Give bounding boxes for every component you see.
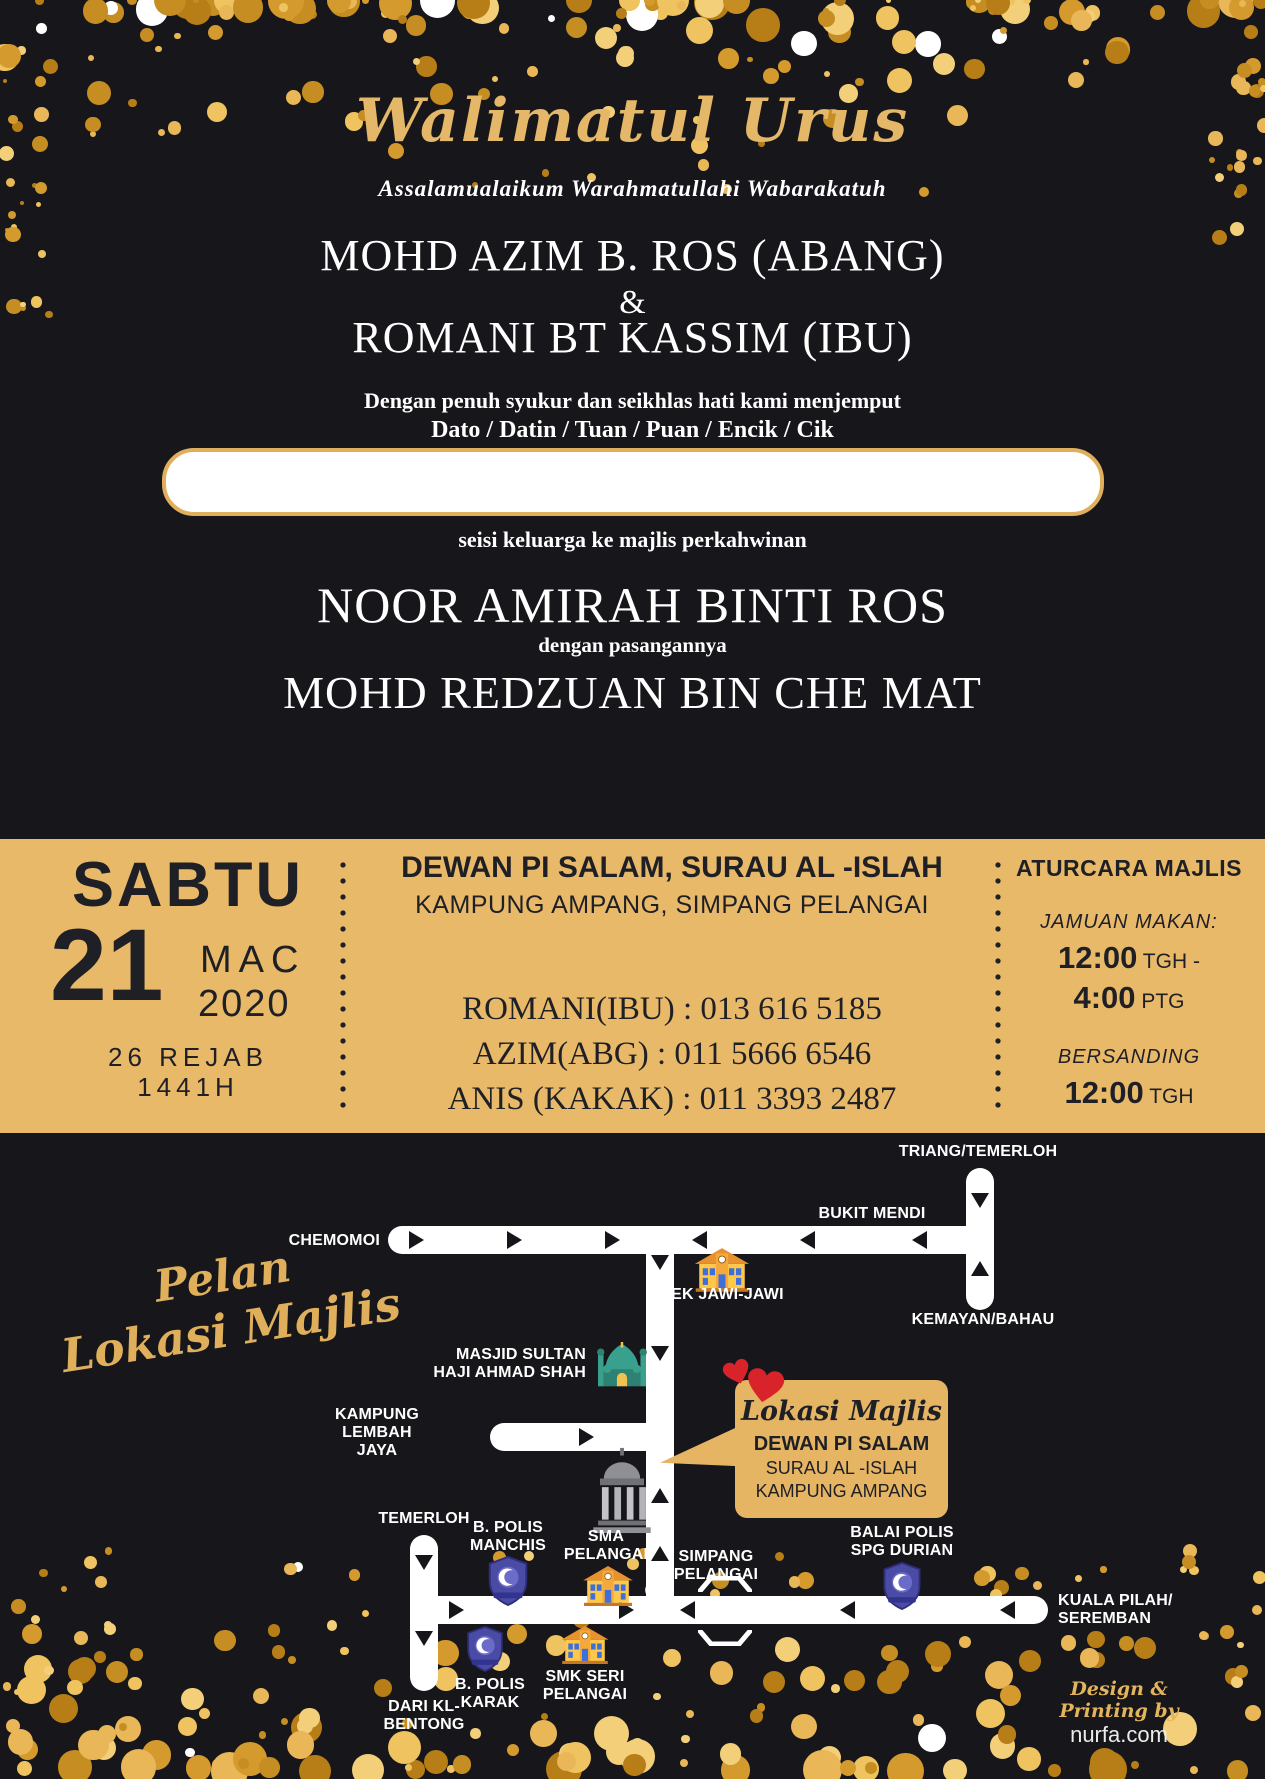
callout-venue-line2: SURAU AL -ISLAH — [735, 1458, 948, 1479]
meal-end-value: 4:00 — [1073, 980, 1135, 1015]
wedding-invitation-poster: Walimatul Urus Assalamualaikum Warahmatu… — [0, 0, 1265, 1779]
hijri-date-line2: 1441H — [42, 1072, 334, 1103]
bride-name: NOOR AMIRAH BINTI ROS — [0, 576, 1265, 634]
bersanding-time: 12:00 TGH — [1003, 1075, 1255, 1111]
arrow-up-icon — [971, 1261, 989, 1276]
invitation-line-1: Dengan penuh syukur dan seikhlas hati ka… — [0, 388, 1265, 414]
meal-end-suffix: PTG — [1136, 990, 1185, 1013]
arrow-down-icon — [971, 1193, 989, 1208]
arrow-down-icon — [651, 1255, 669, 1270]
arrow-right-icon — [579, 1428, 594, 1446]
map-label-balai-line1: BALAI POLIS — [827, 1524, 977, 1542]
arrow-down-icon — [415, 1555, 433, 1570]
bersanding-value: 12:00 — [1064, 1075, 1143, 1110]
map-label-kg-line3: JAYA — [307, 1442, 447, 1460]
arrow-left-icon — [692, 1231, 707, 1249]
contact-3: ANIS (KAKAK) : 011 3393 2487 — [352, 1077, 992, 1122]
junction-bracket-bottom — [698, 1630, 752, 1646]
meal-start-time: 12:00 TGH - — [1003, 940, 1255, 976]
map-label-triang-temerloh: TRIANG/TEMERLOH — [878, 1143, 1078, 1161]
map-label-manchis-line2: MANCHIS — [456, 1537, 560, 1555]
contact-list: ROMANI(IBU) : 013 616 5185 AZIM(ABG) : 0… — [352, 987, 992, 1122]
map-label-dari-line2: BENTONG — [359, 1716, 489, 1734]
map-label-manchis-line1: B. POLIS — [456, 1519, 560, 1537]
map-label-balai-polis-spg-durian: BALAI POLIS SPG DURIAN — [827, 1524, 977, 1560]
map-label-kg-line2: LEMBAH — [307, 1424, 447, 1442]
dotted-divider-right — [995, 857, 1001, 1117]
heart-icon — [741, 1363, 789, 1409]
map-label-masjid-line1: MASJID SULTAN — [416, 1346, 586, 1364]
map-label-sma-line1: SMA — [554, 1528, 658, 1546]
arrow-right-icon — [449, 1601, 464, 1619]
salutation-line: Assalamualaikum Warahmatullahi Wabarakat… — [0, 176, 1265, 202]
bersanding-label: BERSANDING — [1003, 1046, 1255, 1069]
bersanding-suffix: TGH — [1144, 1085, 1194, 1108]
host-name-1: MOHD AZIM B. ROS (ABANG) — [0, 230, 1265, 281]
police-badge-icon — [486, 1556, 530, 1606]
callout-venue-line3: KAMPUNG AMPANG — [735, 1481, 948, 1502]
map-label-masjid-line2: HAJI AHMAD SHAH — [416, 1364, 586, 1382]
venue-address: KAMPUNG AMPANG, SIMPANG PELANGAI — [352, 891, 992, 920]
groom-name: MOHD REDZUAN BIN CHE MAT — [0, 666, 1265, 719]
meal-start-suffix: TGH - — [1137, 950, 1200, 973]
host-name-2: ROMANI BT KASSIM (IBU) — [0, 312, 1265, 363]
mosque-icon — [596, 1342, 648, 1390]
event-year: 2020 — [198, 983, 291, 1026]
hall-building-icon — [590, 1446, 654, 1534]
credit-script-line: Design & Printing by — [1024, 1678, 1214, 1722]
map-label-kg-line1: KAMPUNG — [307, 1406, 447, 1424]
map-label-sma-line2: PELANGAI — [554, 1546, 658, 1564]
meal-end-time: 4:00 PTG — [1003, 980, 1255, 1016]
map-label-kampung-lembah-jaya: KAMPUNG LEMBAH JAYA — [307, 1406, 447, 1460]
map-label-simpang-line1: SIMPANG — [651, 1548, 781, 1566]
arrow-left-icon — [800, 1231, 815, 1249]
credit-site: nurfa.com — [1024, 1722, 1214, 1748]
callout-venue-name: DEWAN PI SALAM — [735, 1433, 948, 1456]
map-label-simpang-pelangai: SIMPANG PELANGAI — [651, 1548, 781, 1584]
event-date-number: 21 — [50, 915, 163, 1015]
map-label-simpang-line2: PELANGAI — [651, 1566, 781, 1584]
police-badge-icon — [880, 1562, 924, 1610]
details-band: SABTU 21 MAC 2020 26 REJAB 1441H DEWAN P… — [0, 839, 1265, 1133]
map-label-kuala-line2: SEREMBAN — [1058, 1610, 1208, 1628]
arrow-right-icon — [409, 1231, 424, 1249]
event-month: MAC — [200, 939, 305, 982]
arrow-down-icon — [415, 1631, 433, 1646]
meal-start-value: 12:00 — [1058, 940, 1137, 975]
designer-credit: Design & Printing by nurfa.com — [1024, 1678, 1214, 1748]
contact-2: AZIM(ABG) : 011 5666 6546 — [352, 1032, 992, 1077]
map-label-chemomoi: CHEMOMOI — [254, 1232, 380, 1250]
event-title: Walimatul Urus — [0, 86, 1265, 156]
road-triang-kemayan — [966, 1168, 994, 1310]
with-partner-line: dengan pasangannya — [0, 633, 1265, 658]
arrow-left-icon — [840, 1601, 855, 1619]
guest-name-field[interactable] — [162, 448, 1104, 516]
contact-1: ROMANI(IBU) : 013 616 5185 — [352, 987, 992, 1032]
map-label-dari-kl-bentong: DARI KL- BENTONG — [359, 1698, 489, 1734]
police-badge-icon — [464, 1626, 506, 1672]
road-chemomoi — [388, 1226, 992, 1254]
map-label-kemayan-bahau: KEMAYAN/BAHAU — [883, 1311, 1083, 1329]
arrow-left-icon — [680, 1601, 695, 1619]
map-label-kuala-line1: KUALA PILAH/ — [1058, 1592, 1208, 1610]
arrow-right-icon — [605, 1231, 620, 1249]
map-label-sma-pelangai: SMA PELANGAI — [554, 1528, 658, 1564]
school-building-icon — [582, 1566, 634, 1606]
map-label-sek-jawi-jawi: SEK JAWI-JAWI — [642, 1286, 802, 1304]
venue-name: DEWAN PI SALAM, SURAU AL -ISLAH — [352, 851, 992, 885]
invitation-line-3: seisi keluarga ke majlis perkahwinan — [0, 527, 1265, 553]
hijri-date-line1: 26 REJAB — [42, 1042, 334, 1073]
school-building-icon — [560, 1626, 610, 1664]
map-label-balai-line2: SPG DURIAN — [827, 1542, 977, 1560]
arrow-left-icon — [1000, 1601, 1015, 1619]
arrow-right-icon — [507, 1231, 522, 1249]
map-label-bpolis-manchis: B. POLIS MANCHIS — [456, 1519, 560, 1555]
dotted-divider-left — [340, 857, 346, 1117]
arrow-down-icon — [651, 1346, 669, 1361]
meal-label: JAMUAN MAKAN: — [1003, 911, 1255, 934]
arrow-left-icon — [912, 1231, 927, 1249]
map-label-karak-line1: B. POLIS — [437, 1676, 543, 1694]
agenda-title: ATURCARA MAJLIS — [1003, 855, 1255, 882]
map-label-dari-line1: DARI KL- — [359, 1698, 489, 1716]
map-label-masjid: MASJID SULTAN HAJI AHMAD SHAH — [416, 1346, 586, 1382]
invitation-line-2-titles: Dato / Datin / Tuan / Puan / Encik / Cik — [0, 417, 1265, 444]
map-label-bukit-mendi: BUKIT MENDI — [790, 1205, 954, 1223]
map-label-kuala-pilah-seremban: KUALA PILAH/ SEREMBAN — [1058, 1592, 1208, 1628]
